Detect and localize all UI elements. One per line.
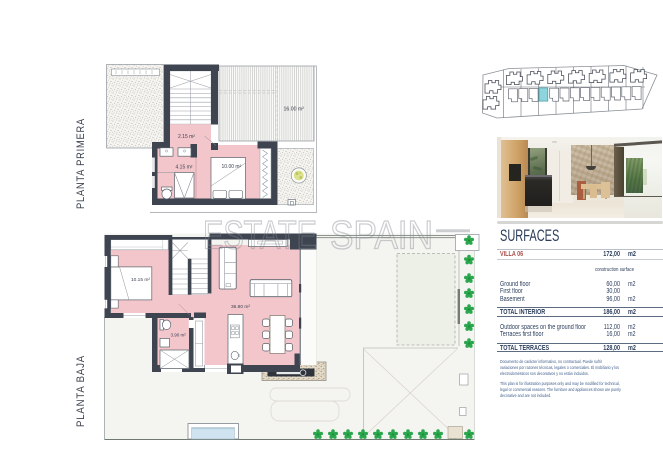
svg-text:SPAIN: SPAIN xyxy=(330,214,433,258)
svg-text:PLANTA PRIMERA: PLANTA PRIMERA xyxy=(75,118,87,209)
svg-text:3.90 m²: 3.90 m² xyxy=(171,333,187,338)
svg-text:36.80 m²: 36.80 m² xyxy=(231,304,250,310)
svg-text:2.15 m²: 2.15 m² xyxy=(178,134,195,140)
svg-text:PLANTA BAJA: PLANTA BAJA xyxy=(75,355,87,427)
svg-text:16.00 m²: 16.00 m² xyxy=(284,107,305,113)
svg-text:10.00 m²: 10.00 m² xyxy=(222,164,242,170)
svg-text:10.15 m²: 10.15 m² xyxy=(131,277,150,283)
svg-text:ESTATE: ESTATE xyxy=(203,214,317,258)
svg-text:4.15 m²: 4.15 m² xyxy=(176,165,193,171)
